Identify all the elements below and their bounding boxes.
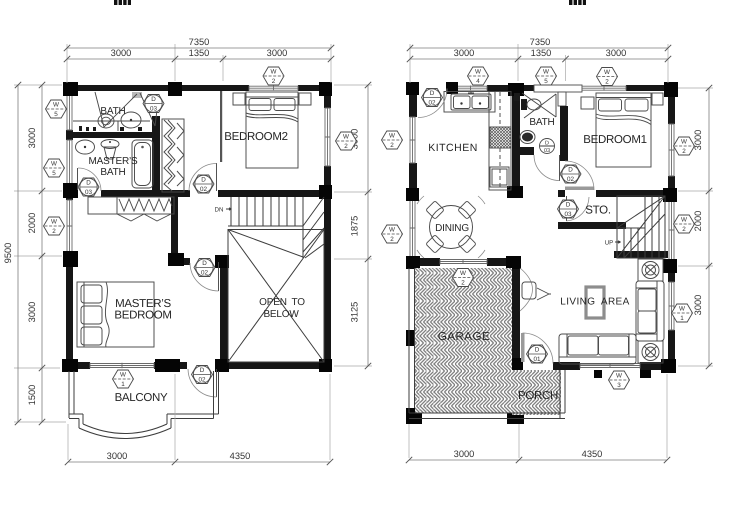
svg-text:5: 5 — [52, 170, 56, 177]
svg-text:7350: 7350 — [189, 37, 210, 47]
svg-text:03: 03 — [150, 106, 158, 113]
svg-text:W: W — [460, 270, 466, 277]
svg-text:GARAGE: GARAGE — [438, 331, 490, 343]
svg-text:BALCONY: BALCONY — [115, 392, 168, 404]
svg-text:3000: 3000 — [267, 48, 288, 58]
svg-text:MASTER’S: MASTER’S — [115, 298, 171, 310]
svg-text:3000: 3000 — [606, 48, 627, 58]
svg-text:W: W — [681, 217, 687, 224]
svg-text:W: W — [389, 227, 395, 234]
svg-text:W: W — [681, 139, 687, 146]
svg-text:STO.: STO. — [585, 205, 611, 217]
svg-text:UP: UP — [605, 240, 614, 247]
svg-text:1350: 1350 — [189, 48, 210, 58]
svg-text:5: 5 — [544, 78, 548, 85]
svg-text:3000: 3000 — [454, 48, 475, 58]
svg-text:4350: 4350 — [230, 451, 251, 461]
svg-text:02: 02 — [201, 270, 209, 277]
svg-text:3: 3 — [617, 382, 621, 389]
svg-text:2000: 2000 — [693, 211, 703, 232]
svg-text:BATH: BATH — [100, 167, 125, 178]
svg-text:3000: 3000 — [27, 302, 37, 323]
svg-text:DINING: DINING — [435, 223, 469, 234]
svg-text:3000: 3000 — [693, 130, 703, 151]
svg-text:2: 2 — [344, 143, 348, 150]
svg-text:D: D — [202, 260, 207, 267]
svg-text:BATH: BATH — [529, 117, 554, 128]
svg-text:BELOW: BELOW — [263, 309, 299, 320]
svg-text:BEDROOM2: BEDROOM2 — [224, 131, 287, 143]
svg-text:W: W — [475, 69, 481, 76]
svg-text:2: 2 — [390, 236, 394, 243]
svg-text:02: 02 — [200, 186, 208, 193]
svg-text:D: D — [568, 167, 573, 174]
svg-text:3000: 3000 — [693, 295, 703, 316]
svg-text:2: 2 — [461, 280, 465, 287]
svg-text:3125: 3125 — [350, 302, 360, 323]
svg-text:W: W — [604, 69, 610, 76]
svg-text:W: W — [389, 133, 395, 140]
svg-text:W: W — [120, 372, 126, 379]
svg-text:W: W — [51, 219, 57, 226]
svg-text:BEDROOM: BEDROOM — [114, 310, 171, 322]
svg-text:W: W — [51, 161, 57, 168]
svg-text:PORCH: PORCH — [518, 390, 558, 402]
svg-text:DN: DN — [215, 207, 224, 214]
svg-text:02: 02 — [428, 100, 436, 107]
svg-text:7350: 7350 — [530, 37, 551, 47]
svg-text:02: 02 — [198, 377, 206, 384]
svg-text:2: 2 — [390, 142, 394, 149]
svg-text:4350: 4350 — [582, 449, 603, 459]
svg-text:1: 1 — [680, 315, 684, 322]
svg-text:D: D — [151, 96, 156, 103]
svg-text:2: 2 — [52, 228, 56, 235]
svg-text:D: D — [430, 90, 435, 97]
svg-text:1500: 1500 — [27, 385, 37, 406]
svg-text:02: 02 — [567, 176, 575, 183]
svg-text:01: 01 — [533, 356, 541, 363]
svg-text:2: 2 — [272, 78, 276, 85]
svg-text:03: 03 — [564, 211, 572, 218]
svg-text:W: W — [543, 69, 549, 76]
svg-text:2000: 2000 — [27, 213, 37, 234]
svg-text:4: 4 — [476, 78, 480, 85]
svg-text:9500: 9500 — [3, 243, 13, 264]
svg-text:OPEN TO: OPEN TO — [259, 297, 305, 308]
svg-text:1875: 1875 — [350, 216, 360, 237]
svg-text:3000: 3000 — [454, 449, 475, 459]
svg-text:W: W — [53, 102, 59, 109]
svg-text:W: W — [271, 69, 277, 76]
svg-text:1: 1 — [121, 381, 125, 388]
svg-text:BATH: BATH — [100, 106, 125, 117]
svg-text:03: 03 — [85, 189, 93, 196]
svg-text:D: D — [566, 202, 571, 209]
svg-text:2: 2 — [605, 79, 609, 86]
svg-text:3000: 3000 — [111, 48, 132, 58]
svg-text:LIVING AREA: LIVING AREA — [560, 297, 629, 308]
svg-text:MASTER’S: MASTER’S — [89, 156, 138, 167]
svg-text:D: D — [545, 141, 549, 147]
svg-text:W: W — [343, 134, 349, 141]
svg-text:1350: 1350 — [531, 48, 552, 58]
svg-text:2: 2 — [682, 148, 686, 155]
svg-text:03: 03 — [544, 148, 550, 154]
svg-text:D: D — [535, 347, 540, 354]
svg-text:3000: 3000 — [107, 451, 128, 461]
svg-text:D: D — [200, 367, 205, 374]
svg-text:D: D — [86, 180, 91, 187]
svg-text:2: 2 — [682, 226, 686, 233]
svg-text:W: W — [616, 373, 622, 380]
svg-text:D: D — [201, 177, 206, 184]
svg-text:KITCHEN: KITCHEN — [428, 142, 478, 154]
svg-text:W: W — [679, 306, 685, 313]
svg-text:5: 5 — [54, 111, 58, 118]
svg-text:BEDROOM1: BEDROOM1 — [583, 134, 646, 146]
svg-text:3000: 3000 — [27, 128, 37, 149]
